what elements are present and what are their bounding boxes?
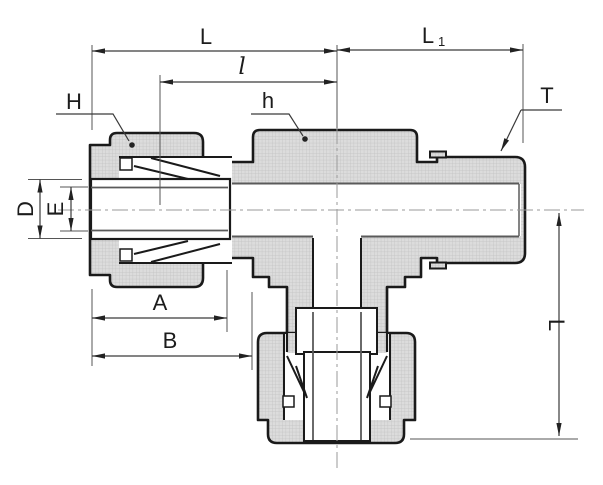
- dim-L-top-label: L: [200, 24, 212, 49]
- label-h-dot: [302, 136, 308, 142]
- label-H-dot: [129, 142, 135, 148]
- dim-E: E: [43, 187, 71, 231]
- dim-E-label: E: [43, 202, 68, 217]
- label-T: T: [501, 83, 562, 151]
- drawing-canvas: L l L 1 D E A B: [0, 0, 603, 485]
- label-T-text: T: [540, 83, 553, 108]
- dim-A: A: [92, 290, 227, 318]
- dim-D: D: [13, 180, 40, 239]
- dim-L-top: L: [92, 24, 337, 51]
- thread-lip-bottom: [430, 263, 446, 269]
- left-thread-notch-top: [120, 158, 132, 170]
- thread-lip-top: [430, 152, 446, 158]
- dim-D-label: D: [13, 201, 38, 217]
- dim-l-small-label: l: [238, 54, 245, 80]
- dim-L1: L 1: [337, 23, 523, 50]
- dim-l-small: l: [160, 54, 337, 82]
- dim-L1-sub: 1: [438, 34, 445, 49]
- bottom-ferrule-notch-right: [380, 396, 391, 407]
- label-H-text: H: [66, 89, 82, 114]
- left-thread-notch-bottom: [120, 249, 132, 261]
- dim-L-vertical-label: L: [544, 319, 569, 331]
- bottom-ferrule-notch-left: [283, 396, 294, 407]
- dim-L1-label: L: [422, 23, 434, 48]
- dim-B: B: [92, 328, 252, 356]
- dim-L-vertical: L: [544, 213, 569, 436]
- dim-B-label: B: [163, 328, 178, 353]
- dim-A-label: A: [153, 290, 168, 315]
- label-h-text: h: [262, 88, 274, 113]
- fitting-drawing: L l L 1 D E A B: [0, 0, 603, 485]
